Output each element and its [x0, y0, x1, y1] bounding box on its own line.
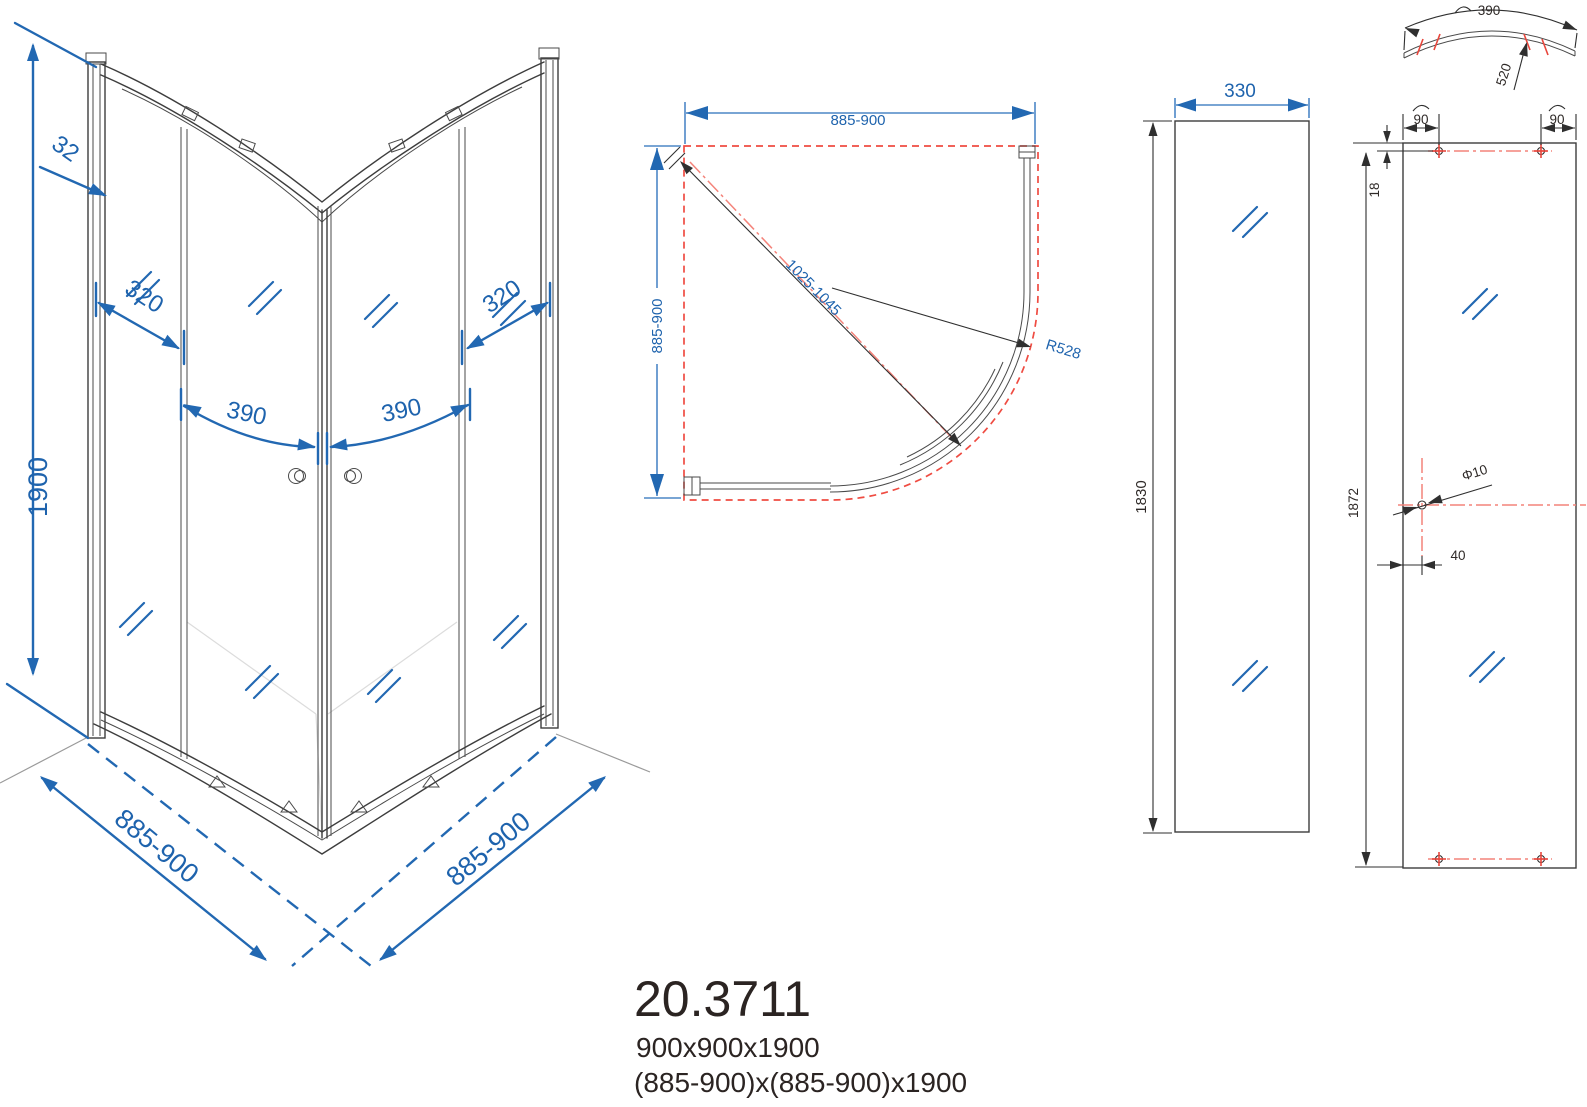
plan-diagonal-dimension: 1025-1045: [677, 158, 964, 449]
glass-hatch-icon: [1233, 207, 1267, 691]
dim-top-offset-label: 18: [1367, 182, 1382, 197]
product-code: 20.3711: [634, 971, 811, 1027]
dim-hole-left-label: 90: [1413, 112, 1428, 127]
door-height-dimension: 1872: [1346, 152, 1403, 867]
plan-tracks: [684, 146, 1035, 495]
glass-hatch-icon: [1463, 289, 1504, 682]
plan-outline: [684, 146, 1038, 500]
dim-frame-label: 32: [47, 130, 84, 167]
door-handle-left: [289, 469, 306, 484]
dim-side-height-label: 1830: [1133, 480, 1150, 513]
side-width-dimension: 330: [1175, 81, 1309, 118]
dim-width-right-label: 885-900: [441, 806, 537, 892]
product-size-range: (885-900)x(885-900)x1900: [634, 1067, 967, 1098]
dim-arc-width-label: 390: [1478, 3, 1501, 18]
view-front-elevation: 1900 32 320 320 390: [0, 23, 650, 966]
side-height-dimension: 1830: [1133, 121, 1172, 833]
dim-door-height-label: 1872: [1346, 488, 1361, 518]
top-hole-markers: [1428, 144, 1552, 158]
dim-plan-width-label: 885-900: [830, 112, 885, 129]
right-frame-post: [539, 48, 559, 728]
arc-length-icon: [1549, 105, 1565, 111]
door-handle-right: [345, 469, 362, 484]
left-frame-post: [86, 53, 106, 738]
dim-side-width-label: 330: [1224, 81, 1256, 102]
top-rail: [101, 62, 544, 222]
technical-drawing-page: 1900 32 320 320 390: [0, 0, 1587, 1107]
plan-width-dimension: 885-900: [685, 102, 1035, 144]
dim-plan-depth-label: 885-900: [649, 298, 666, 353]
product-size-nominal: 900x900x1900: [636, 1032, 820, 1063]
door-dividers: [181, 127, 465, 838]
curved-glass-strip: 390 520: [1403, 3, 1578, 90]
dim-side-offset-label: 40: [1450, 548, 1465, 563]
view-plan: 1025-1045 R528 885-900 885-900: [644, 102, 1083, 500]
handle-hole-callout: Φ10: [1393, 458, 1586, 556]
dim-width-left-label: 885-900: [109, 803, 205, 889]
dim-diagonal-label: 1025-1045: [782, 256, 844, 319]
hole-side-offset-dimension: 40: [1377, 548, 1466, 575]
floor-line-left: [0, 737, 88, 783]
dim-radius-label: R528: [1044, 336, 1083, 363]
side-panel-glass: [1175, 121, 1309, 832]
front-dimensions: 1900 32 320 320 390: [7, 23, 610, 966]
dim-fixed-left-label: 320: [120, 274, 168, 318]
dim-height-label: 1900: [23, 457, 53, 517]
arc-length-icon: [1413, 105, 1429, 111]
view-door-glass: 390 520: [1346, 3, 1586, 868]
floor-line-right: [556, 734, 650, 772]
dim-arc-length-label: 520: [1493, 62, 1514, 88]
product-info: 20.3711 900x900x1900 (885-900)x(885-900)…: [634, 971, 967, 1098]
bottom-hole-markers: [1428, 852, 1552, 866]
dim-hole-right-label: 90: [1549, 112, 1564, 127]
dim-door-right-label: 390: [379, 393, 424, 428]
hole-offset-dimensions: 90 90: [1403, 105, 1576, 145]
view-side-panel: 330 1830: [1133, 81, 1309, 833]
shower-enclosure-drawing: 1900 32 320 320 390: [0, 0, 1587, 1107]
dim-fixed-right-label: 320: [478, 274, 526, 318]
dim-door-left-label: 390: [224, 396, 269, 431]
dim-hole-diameter-label: Φ10: [1460, 462, 1489, 484]
plan-depth-dimension: 885-900: [644, 146, 681, 498]
